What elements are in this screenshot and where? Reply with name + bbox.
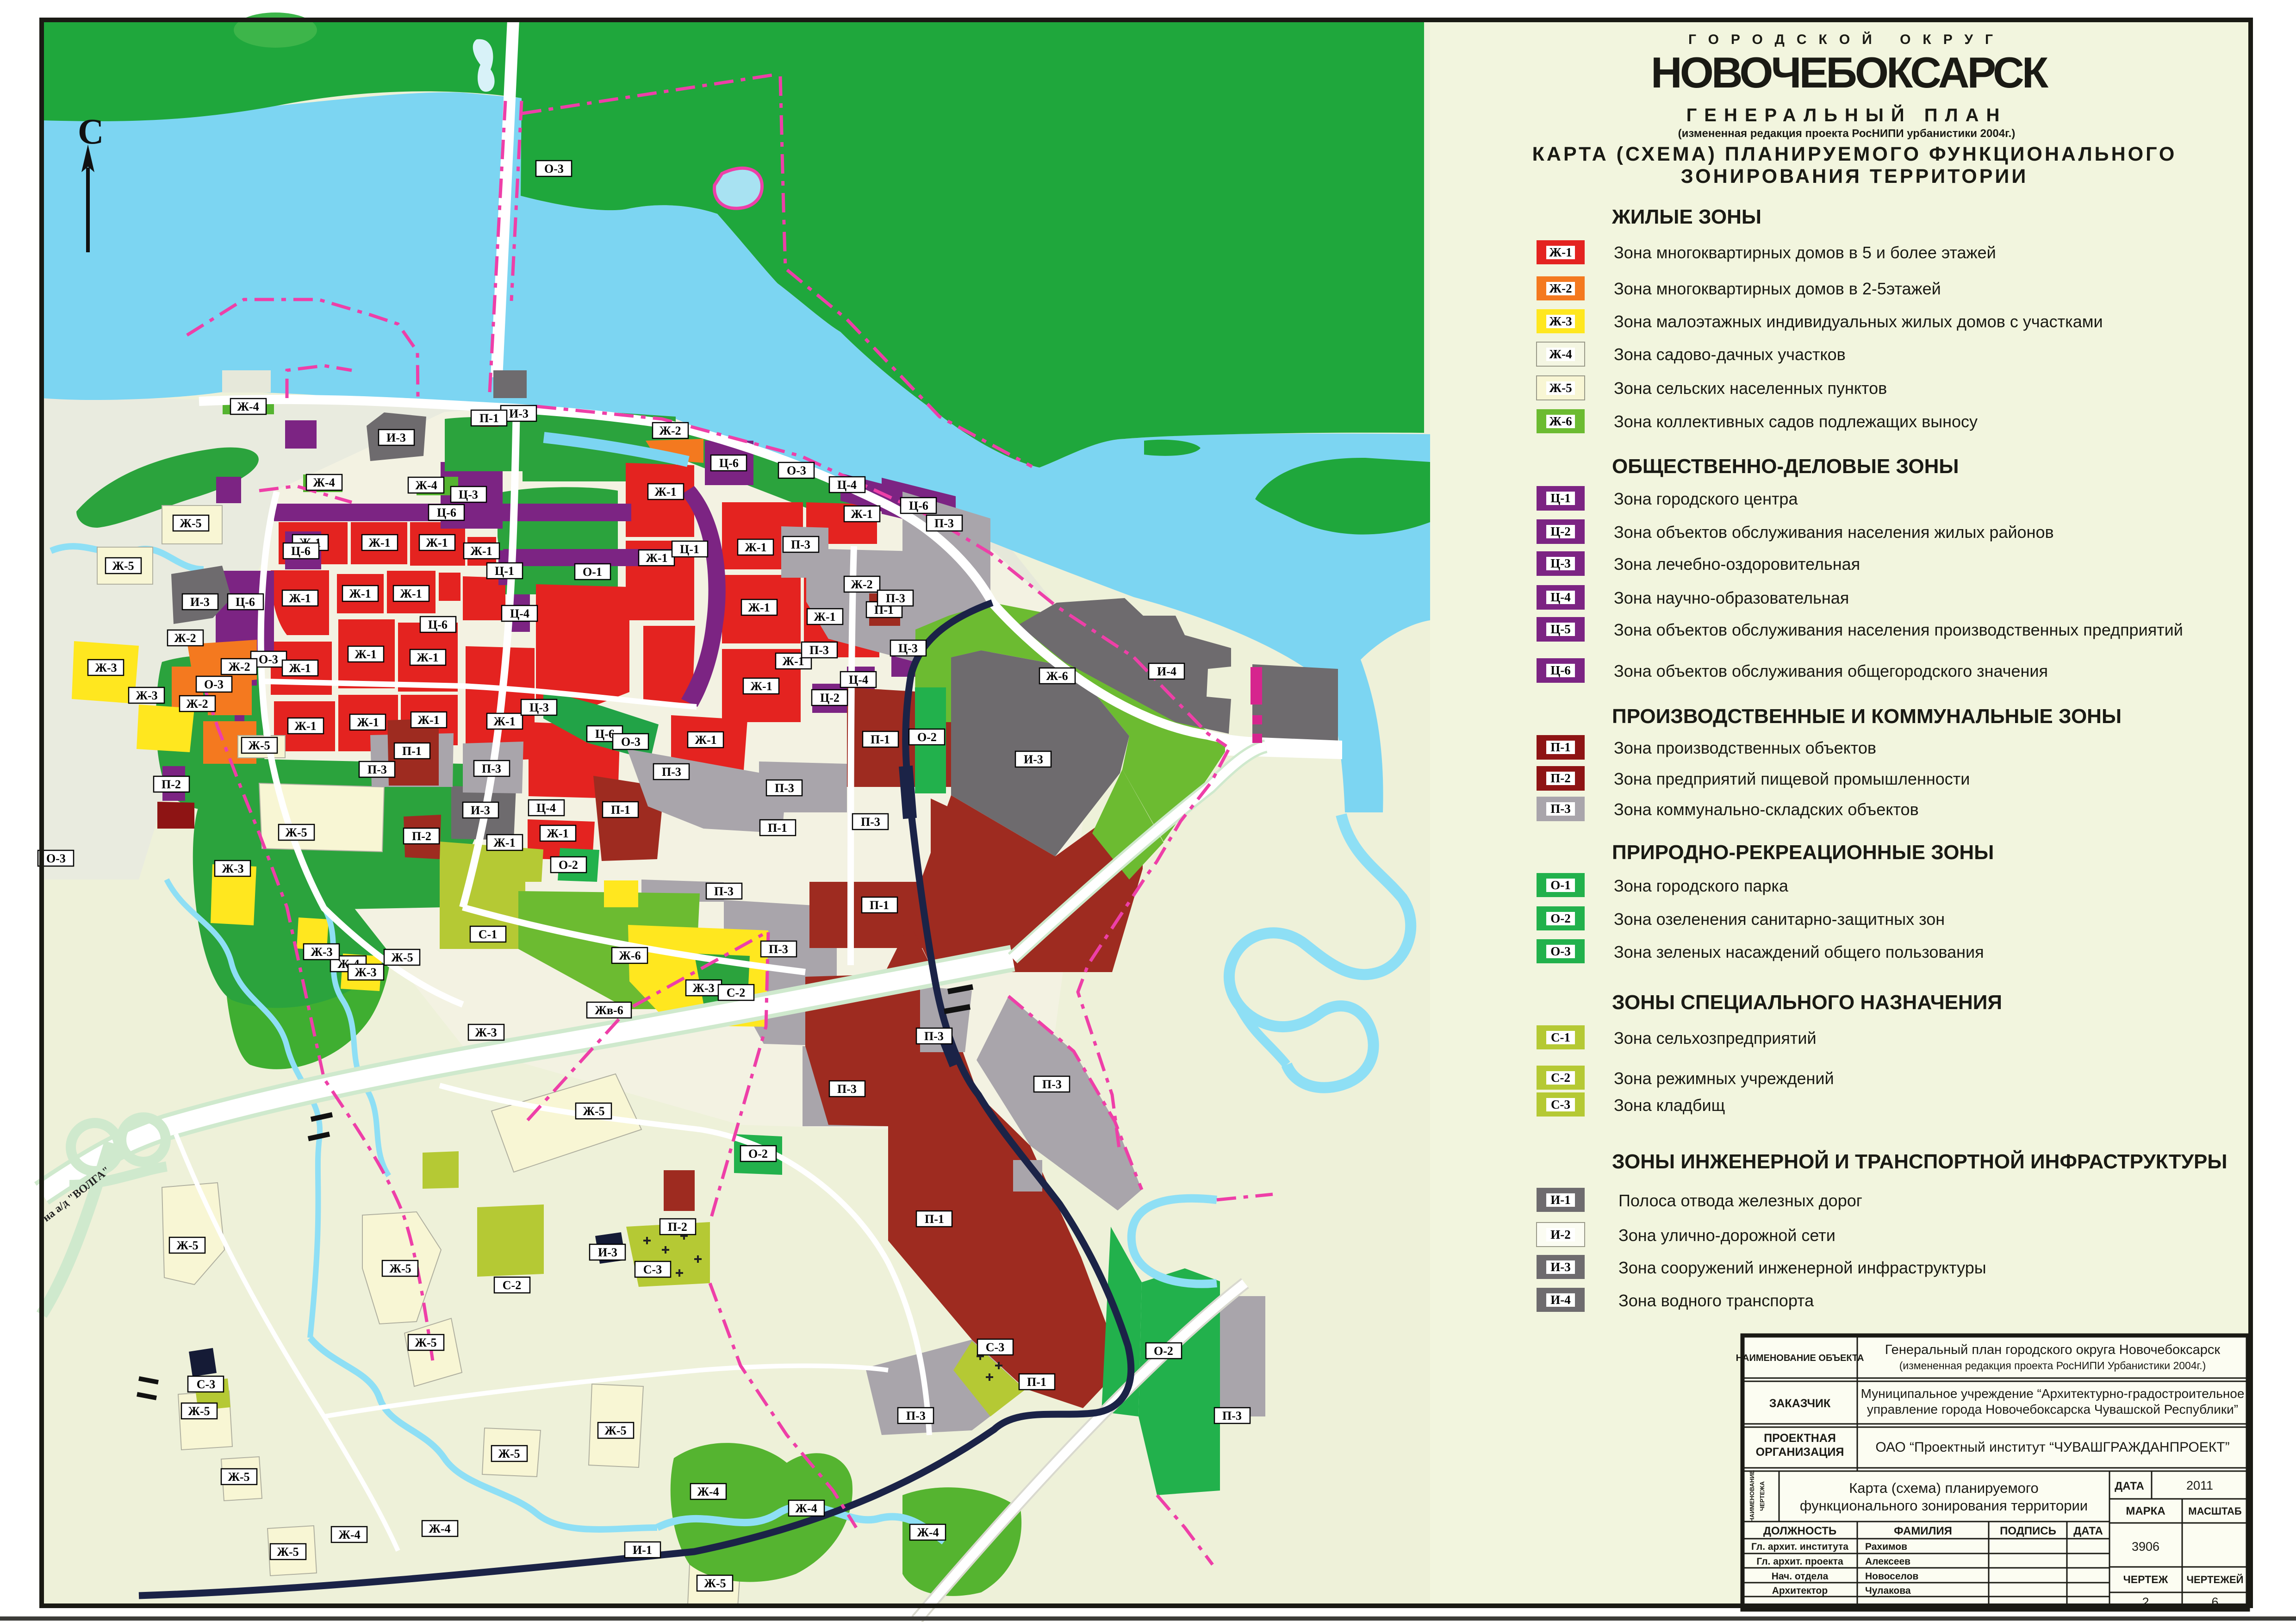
- svg-text:Зона сооружений инженерной инф: Зона сооружений инженерной инфраструктур…: [1618, 1258, 1986, 1277]
- svg-text:Ц-3: Ц-3: [459, 488, 478, 501]
- svg-text:П-1: П-1: [871, 733, 890, 746]
- svg-text:Архитектор: Архитектор: [1772, 1585, 1828, 1596]
- svg-text:Ж-1: Ж-1: [400, 587, 422, 600]
- svg-text:И-3: И-3: [471, 804, 490, 817]
- svg-text:С-2: С-2: [1551, 1071, 1570, 1085]
- svg-text:Ж-1: Ж-1: [417, 713, 439, 727]
- svg-text:Ц-4: Ц-4: [536, 801, 556, 815]
- svg-text:Ж-5: Ж-5: [391, 951, 413, 964]
- svg-text:П-1: П-1: [1027, 1375, 1046, 1389]
- svg-text:НАИМЕНОВАНИЕ: НАИМЕНОВАНИЕ: [1748, 1470, 1755, 1522]
- svg-text:Ж-3: Ж-3: [95, 661, 117, 674]
- svg-text:Ж-1: Ж-1: [814, 610, 835, 624]
- svg-text:И-3: И-3: [190, 595, 210, 609]
- svg-text:Зона сельхозпредприятий: Зона сельхозпредприятий: [1614, 1029, 1817, 1048]
- svg-text:Зона коммунально-складских объ: Зона коммунально-складских объектов: [1614, 800, 1919, 819]
- svg-text:Ж-1: Ж-1: [1549, 245, 1572, 259]
- svg-text:П-2: П-2: [162, 778, 181, 791]
- svg-text:Рахимов: Рахимов: [1865, 1541, 1907, 1552]
- svg-text:МАРКА: МАРКА: [2126, 1505, 2165, 1517]
- svg-text:ОАО “Проектный институт “ЧУВАШ: ОАО “Проектный институт “ЧУВАШГРАЖДАНПРО…: [1875, 1440, 2229, 1455]
- svg-text:ЧЕРТЕЖ: ЧЕРТЕЖ: [2123, 1573, 2168, 1585]
- svg-text:Ж-1: Ж-1: [349, 587, 371, 600]
- svg-text:Зона многоквартирных домов в 5: Зона многоквартирных домов в 5 и более э…: [1614, 243, 1996, 262]
- svg-text:Ж-5: Ж-5: [604, 1424, 626, 1437]
- svg-text:Ц-3: Ц-3: [1550, 556, 1571, 570]
- svg-text:Ж-1: Ж-1: [470, 544, 492, 558]
- svg-text:И-3: И-3: [598, 1246, 617, 1259]
- svg-text:Ж-4: Ж-4: [338, 1528, 360, 1541]
- svg-text:П-1: П-1: [925, 1212, 944, 1226]
- svg-text:Ц-1: Ц-1: [495, 564, 514, 578]
- svg-text:С-2: С-2: [727, 986, 745, 999]
- svg-text:И-1: И-1: [633, 1543, 652, 1557]
- svg-text:Ж-3: Ж-3: [1549, 314, 1572, 328]
- svg-text:Зона научно-образовательная: Зона научно-образовательная: [1614, 588, 1849, 607]
- svg-text:О-3: О-3: [204, 678, 224, 691]
- svg-text:Зона улично-дорожной сети: Зона улично-дорожной сети: [1618, 1226, 1836, 1245]
- svg-text:П-3: П-3: [482, 762, 501, 775]
- svg-text:Ж-2: Ж-2: [659, 424, 681, 437]
- svg-text:(измененная редакция проекта Р: (измененная редакция проекта РосНИПИ Урб…: [1899, 1360, 2206, 1372]
- svg-text:О-1: О-1: [583, 565, 602, 579]
- svg-text:П-2: П-2: [668, 1220, 687, 1234]
- svg-text:О-2: О-2: [559, 858, 578, 872]
- svg-text:Ц-3: Ц-3: [898, 642, 918, 655]
- svg-text:Ж-5: Ж-5: [228, 1470, 249, 1484]
- svg-text:Ж-3: Ж-3: [311, 945, 332, 959]
- svg-text:Ж-4: Ж-4: [237, 400, 259, 413]
- svg-text:Ц-5: Ц-5: [1550, 622, 1571, 636]
- svg-text:Ж-1: Ж-1: [417, 651, 438, 664]
- svg-text:Ж-1: Ж-1: [695, 733, 716, 747]
- svg-text:Зона коллективных садов подлеж: Зона коллективных садов подлежащих вынос…: [1614, 412, 1978, 431]
- svg-text:П-3: П-3: [775, 781, 794, 795]
- svg-text:Ж-3: Ж-3: [136, 689, 157, 702]
- svg-text:Ж-2: Ж-2: [1549, 281, 1572, 295]
- svg-text:ПРИРОДНО-РЕКРЕАЦИОННЫЕ ЗОНЫ: ПРИРОДНО-РЕКРЕАЦИОННЫЕ ЗОНЫ: [1612, 841, 1994, 864]
- svg-text:О-3: О-3: [544, 162, 564, 175]
- svg-text:Ц-4: Ц-4: [1550, 590, 1571, 604]
- svg-text:Ц-6: Ц-6: [428, 618, 448, 631]
- svg-text:Ж-1: Ж-1: [355, 648, 376, 661]
- svg-text:ЧЕРТЕЖА: ЧЕРТЕЖА: [1759, 1481, 1766, 1511]
- svg-text:Ц-2: Ц-2: [820, 691, 840, 705]
- svg-text:Ж-5: Ж-5: [180, 517, 201, 530]
- svg-text:Ж-4: Ж-4: [697, 1485, 719, 1498]
- svg-text:Ж-2: Ж-2: [186, 697, 208, 711]
- svg-text:Ж-4: Ж-4: [429, 1522, 450, 1535]
- svg-text:Зона объектов обслуживания общ: Зона объектов обслуживания общегородског…: [1614, 661, 2048, 680]
- svg-text:Ж-4: Ж-4: [795, 1502, 817, 1515]
- svg-text:П-3: П-3: [791, 538, 810, 551]
- svg-text:Ж-1: Ж-1: [745, 541, 766, 554]
- svg-text:Ж-2: Ж-2: [851, 578, 872, 591]
- svg-text:О-3: О-3: [1550, 944, 1571, 958]
- svg-text:Ц-4: Ц-4: [849, 673, 868, 686]
- svg-text:Зона многоквартирных домов в 2: Зона многоквартирных домов в 2-5этажей: [1614, 279, 1941, 298]
- svg-text:ПРОИЗВОДСТВЕННЫЕ И КОММУНАЛЬНЫ: ПРОИЗВОДСТВЕННЫЕ И КОММУНАЛЬНЫЕ ЗОНЫ: [1612, 705, 2122, 728]
- svg-text:МАСШТАБ: МАСШТАБ: [2188, 1505, 2242, 1517]
- svg-text:Ж-5: Ж-5: [415, 1336, 436, 1349]
- svg-text:Зона лечебно-оздоровительная: Зона лечебно-оздоровительная: [1614, 555, 1860, 574]
- svg-text:Ж-4: Ж-4: [313, 476, 335, 489]
- svg-text:Зона водного транспорта: Зона водного транспорта: [1618, 1291, 1814, 1310]
- svg-text:П-3: П-3: [1550, 802, 1571, 816]
- svg-text:ГЕНЕРАЛЬНЫЙ ПЛАН: ГЕНЕРАЛЬНЫЙ ПЛАН: [1686, 104, 2007, 125]
- svg-text:Чулакова: Чулакова: [1865, 1585, 1911, 1596]
- svg-text:ДОЛЖНОСТЬ: ДОЛЖНОСТЬ: [1763, 1525, 1836, 1537]
- svg-text:Ц-6: Ц-6: [909, 499, 928, 512]
- svg-text:И-4: И-4: [1550, 1293, 1571, 1307]
- svg-text:НОВОЧЕБОКСАРСК: НОВОЧЕБОКСАРСК: [1651, 48, 2049, 97]
- svg-text:П-3: П-3: [1222, 1409, 1242, 1422]
- svg-text:Ж-5: Ж-5: [248, 739, 270, 752]
- svg-text:Ж-1: Ж-1: [368, 536, 390, 549]
- svg-text:П-3: П-3: [886, 592, 905, 605]
- svg-text:Ж-5: Ж-5: [277, 1545, 299, 1559]
- svg-text:С-3: С-3: [197, 1378, 215, 1391]
- svg-text:Генеральный план городского ок: Генеральный план городского округа Новоч…: [1885, 1342, 2220, 1357]
- svg-text:О-2: О-2: [917, 730, 937, 744]
- svg-text:Зона производственных объектов: Зона производственных объектов: [1614, 738, 1876, 757]
- svg-text:П-3: П-3: [809, 643, 829, 657]
- svg-text:Зона садово-дачных участков: Зона садово-дачных участков: [1614, 345, 1846, 364]
- svg-text:С-1: С-1: [479, 928, 497, 941]
- svg-text:О-3: О-3: [787, 464, 806, 477]
- svg-text:П-2: П-2: [412, 830, 431, 843]
- svg-text:П-1: П-1: [479, 412, 499, 425]
- svg-text:Ж-5: Ж-5: [583, 1104, 604, 1118]
- svg-text:ЧЕРТЕЖЕЙ: ЧЕРТЕЖЕЙ: [2187, 1574, 2244, 1585]
- svg-text:Муниципальное учреждение “Архи: Муниципальное учреждение “Архитектурно-г…: [1861, 1386, 2245, 1401]
- svg-text:Ж-1: Ж-1: [547, 827, 568, 840]
- svg-text:С: С: [78, 111, 104, 151]
- svg-text:Ж-1: Ж-1: [493, 836, 515, 849]
- svg-text:Зона городского парка: Зона городского парка: [1614, 876, 1789, 895]
- svg-text:управление города Новочебоксар: управление города Новочебоксарска Чувашс…: [1867, 1402, 2238, 1416]
- svg-text:Ц-4: Ц-4: [510, 607, 529, 620]
- svg-text:Ж-4: Ж-4: [917, 1526, 939, 1539]
- svg-text:Нач. отдела: Нач. отдела: [1772, 1571, 1829, 1582]
- svg-text:Ж-5: Ж-5: [188, 1404, 210, 1418]
- svg-text:ГОРОДСКОЙ ОКРУГ: ГОРОДСКОЙ ОКРУГ: [1688, 31, 2005, 47]
- svg-text:И-2: И-2: [1550, 1228, 1571, 1241]
- svg-text:ЖИЛЫЕ ЗОНЫ: ЖИЛЫЕ ЗОНЫ: [1612, 206, 1761, 228]
- svg-text:Ж-1: Ж-1: [646, 551, 667, 565]
- svg-text:Гл. архит. института: Гл. архит. института: [1751, 1541, 1848, 1552]
- svg-text:Зона предприятий пищевой промы: Зона предприятий пищевой промышленности: [1614, 769, 1970, 788]
- svg-text:ОБЩЕСТВЕННО-ДЕЛОВЫЕ ЗОНЫ: ОБЩЕСТВЕННО-ДЕЛОВЫЕ ЗОНЫ: [1612, 455, 1959, 478]
- svg-text:Ж-4: Ж-4: [1549, 347, 1572, 361]
- svg-text:Ж-5: Ж-5: [1549, 381, 1572, 395]
- svg-text:П-2: П-2: [1550, 771, 1571, 785]
- svg-text:О-1: О-1: [1550, 878, 1571, 892]
- svg-text:(измененная редакция проекта Р: (измененная редакция проекта РосНИПИ урб…: [1678, 127, 2016, 140]
- svg-text:Ж-1: Ж-1: [851, 507, 872, 521]
- svg-text:ДАТА: ДАТА: [2073, 1525, 2103, 1537]
- svg-text:Ж-5: Ж-5: [498, 1447, 520, 1460]
- svg-text:Ц-1: Ц-1: [680, 543, 699, 556]
- svg-text:Ж-5: Ж-5: [389, 1262, 411, 1275]
- svg-text:Ж-3: Ж-3: [222, 862, 243, 875]
- svg-text:Ж-1: Ж-1: [750, 680, 772, 693]
- svg-text:Полоса отвода железных дорог: Полоса отвода железных дорог: [1618, 1191, 1862, 1210]
- svg-text:Ц-6: Ц-6: [291, 544, 311, 558]
- svg-text:О-3: О-3: [259, 653, 278, 666]
- svg-text:Ж-3: Ж-3: [475, 1026, 497, 1039]
- svg-text:Новоселов: Новоселов: [1865, 1571, 1918, 1582]
- svg-text:ФАМИЛИЯ: ФАМИЛИЯ: [1894, 1525, 1952, 1537]
- svg-text:Ж-2: Ж-2: [228, 660, 250, 674]
- svg-text:ЗАКАЗЧИК: ЗАКАЗЧИК: [1769, 1397, 1831, 1410]
- svg-text:Зона режимных учреждений: Зона режимных учреждений: [1614, 1069, 1834, 1088]
- svg-text:П-3: П-3: [861, 815, 880, 829]
- svg-text:П-3: П-3: [769, 942, 788, 956]
- svg-text:С-3: С-3: [986, 1341, 1004, 1354]
- svg-text:П-3: П-3: [367, 763, 387, 776]
- svg-text:Ж-6: Ж-6: [1046, 669, 1068, 683]
- svg-text:Ж-3: Ж-3: [355, 966, 376, 979]
- svg-text:функционального зонирования те: функционального зонирования территории: [1800, 1497, 2088, 1514]
- svg-text:Гл. архит. проекта: Гл. архит. проекта: [1756, 1556, 1843, 1567]
- svg-text:ПРОЕКТНАЯ: ПРОЕКТНАЯ: [1764, 1432, 1836, 1445]
- svg-text:ОРГАНИЗАЦИЯ: ОРГАНИЗАЦИЯ: [1756, 1446, 1844, 1459]
- svg-text:Зона сельских населенных пункт: Зона сельских населенных пунктов: [1614, 379, 1887, 398]
- svg-text:Ж-1: Ж-1: [782, 655, 804, 668]
- svg-text:Зона кладбищ: Зона кладбищ: [1614, 1096, 1725, 1115]
- svg-text:Ц-4: Ц-4: [837, 478, 857, 492]
- svg-text:Алексеев: Алексеев: [1865, 1556, 1910, 1567]
- svg-text:Ж-6: Ж-6: [1549, 414, 1572, 428]
- svg-text:О-3: О-3: [621, 735, 641, 749]
- svg-text:Зона объектов обслуживания нас: Зона объектов обслуживания населения жил…: [1614, 523, 2054, 542]
- svg-text:Ц-6: Ц-6: [437, 506, 456, 519]
- svg-text:Жв-6: Жв-6: [595, 1004, 623, 1017]
- svg-text:Ж-5: Ж-5: [176, 1239, 198, 1252]
- svg-text:П-1: П-1: [611, 803, 630, 817]
- svg-text:Зона малоэтажных индивидуальны: Зона малоэтажных индивидуальных жилых до…: [1614, 312, 2103, 331]
- svg-text:И-1: И-1: [1550, 1193, 1571, 1207]
- svg-text:С-3: С-3: [1551, 1098, 1570, 1111]
- svg-text:ЗОНЫ СПЕЦИАЛЬНОГО НАЗНАЧЕНИЯ: ЗОНЫ СПЕЦИАЛЬНОГО НАЗНАЧЕНИЯ: [1612, 991, 2002, 1014]
- svg-text:Ж-3: Ж-3: [692, 981, 714, 995]
- svg-text:ЗОНИРОВАНИЯ ТЕРРИТОРИИ: ЗОНИРОВАНИЯ ТЕРРИТОРИИ: [1681, 165, 2028, 187]
- svg-text:П-3: П-3: [924, 1029, 944, 1043]
- svg-text:Карта (схема) планируемого: Карта (схема) планируемого: [1849, 1480, 2039, 1496]
- svg-text:Ж-2: Ж-2: [174, 631, 196, 645]
- svg-text:Зона зеленых насаждений общего: Зона зеленых насаждений общего пользован…: [1614, 942, 1984, 961]
- svg-text:Ж-1: Ж-1: [654, 485, 676, 499]
- svg-text:ДАТА: ДАТА: [2115, 1480, 2144, 1492]
- svg-text:И-3: И-3: [1024, 753, 1043, 766]
- svg-text:П-3: П-3: [906, 1409, 926, 1422]
- svg-text:Ц-6: Ц-6: [1550, 663, 1571, 677]
- svg-text:Ц-3: Ц-3: [529, 701, 549, 714]
- svg-text:Ц-6: Ц-6: [719, 456, 739, 470]
- svg-text:П-3: П-3: [714, 885, 734, 898]
- svg-text:Ж-4: Ж-4: [415, 479, 437, 492]
- svg-text:П-3: П-3: [662, 765, 681, 779]
- svg-text:П-1: П-1: [768, 821, 787, 835]
- svg-text:НАИМЕНОВАНИЕ ОБЪЕКТА: НАИМЕНОВАНИЕ ОБЪЕКТА: [1736, 1353, 1864, 1363]
- svg-text:Ц-6: Ц-6: [236, 595, 255, 609]
- svg-text:П-1: П-1: [402, 744, 422, 758]
- svg-text:Ж-1: Ж-1: [289, 592, 311, 605]
- svg-text:Ж-1: Ж-1: [493, 715, 515, 728]
- svg-text:ПОДПИСЬ: ПОДПИСЬ: [2000, 1525, 2056, 1537]
- svg-text:3906: 3906: [2132, 1540, 2159, 1553]
- svg-text:Зона объектов обслуживания нас: Зона объектов обслуживания населения про…: [1614, 620, 2183, 639]
- svg-text:О-2: О-2: [748, 1147, 768, 1160]
- svg-text:Зона озеленения санитарно-защи: Зона озеленения санитарно-защитных зон: [1614, 910, 1945, 929]
- svg-text:П-1: П-1: [870, 898, 889, 912]
- svg-text:С-3: С-3: [643, 1263, 662, 1276]
- svg-text:Ж-1: Ж-1: [357, 716, 379, 729]
- svg-text:И-4: И-4: [1157, 665, 1176, 678]
- svg-text:Зона городского центра: Зона городского центра: [1614, 489, 1798, 508]
- svg-text:Ж-5: Ж-5: [704, 1577, 726, 1590]
- svg-text:ЗОНЫ ИНЖЕНЕРНОЙ И ТРАНСПОРТНОЙ: ЗОНЫ ИНЖЕНЕРНОЙ И ТРАНСПОРТНОЙ ИНФРАСТРУ…: [1612, 1149, 2227, 1173]
- svg-text:И-3: И-3: [386, 431, 406, 444]
- svg-text:Ц-2: Ц-2: [1550, 524, 1571, 538]
- svg-text:О-2: О-2: [1154, 1344, 1173, 1358]
- svg-text:О-3: О-3: [46, 852, 66, 865]
- svg-text:П-3: П-3: [837, 1082, 857, 1096]
- svg-text:Ж-1: Ж-1: [426, 536, 448, 549]
- svg-text:Ц-6: Ц-6: [595, 727, 615, 741]
- svg-text:Ж-1: Ж-1: [294, 719, 316, 733]
- svg-text:Ц-1: Ц-1: [1550, 491, 1571, 505]
- svg-text:И-3: И-3: [509, 407, 529, 420]
- svg-text:О-2: О-2: [1550, 911, 1571, 925]
- svg-text:КАРТА (СХЕМА) ПЛАНИРУЕМОГО ФУН: КАРТА (СХЕМА) ПЛАНИРУЕМОГО ФУНКЦИОНАЛЬНО…: [1532, 143, 2177, 165]
- svg-text:П-3: П-3: [1042, 1078, 1062, 1091]
- svg-text:Ж-1: Ж-1: [748, 601, 770, 614]
- svg-text:С-2: С-2: [503, 1279, 521, 1292]
- svg-text:С-1: С-1: [1551, 1030, 1570, 1044]
- svg-text:Ж-1: Ж-1: [289, 661, 311, 675]
- svg-text:Ж-5: Ж-5: [285, 826, 307, 839]
- svg-text:И-3: И-3: [1550, 1260, 1571, 1274]
- svg-text:2011: 2011: [2186, 1479, 2213, 1492]
- svg-text:Ж-5: Ж-5: [112, 559, 134, 573]
- svg-text:П-1: П-1: [1550, 740, 1571, 754]
- svg-text:Ж-6: Ж-6: [619, 949, 641, 962]
- svg-text:П-3: П-3: [934, 517, 954, 530]
